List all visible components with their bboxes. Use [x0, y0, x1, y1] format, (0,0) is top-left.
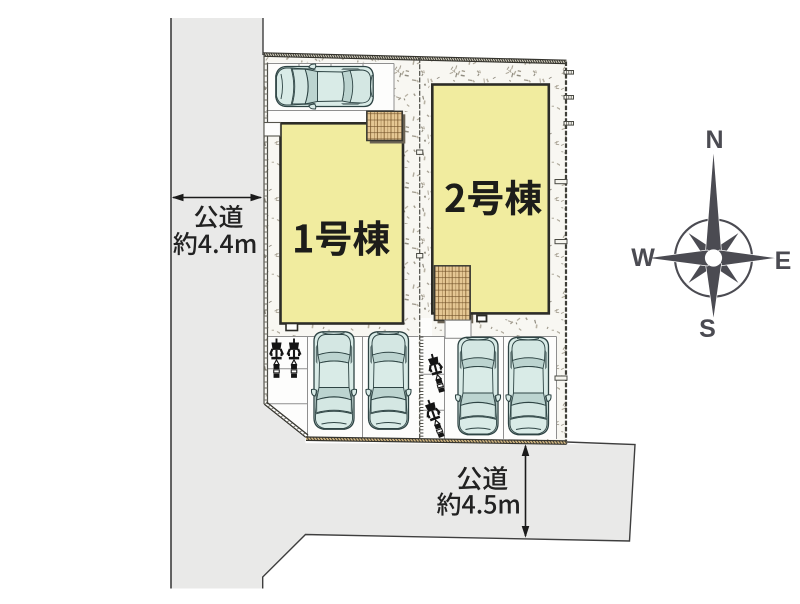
svg-text:S: S: [699, 315, 716, 343]
svg-text:E: E: [775, 247, 792, 275]
svg-text:N: N: [705, 126, 723, 154]
svg-text:W: W: [631, 244, 655, 272]
